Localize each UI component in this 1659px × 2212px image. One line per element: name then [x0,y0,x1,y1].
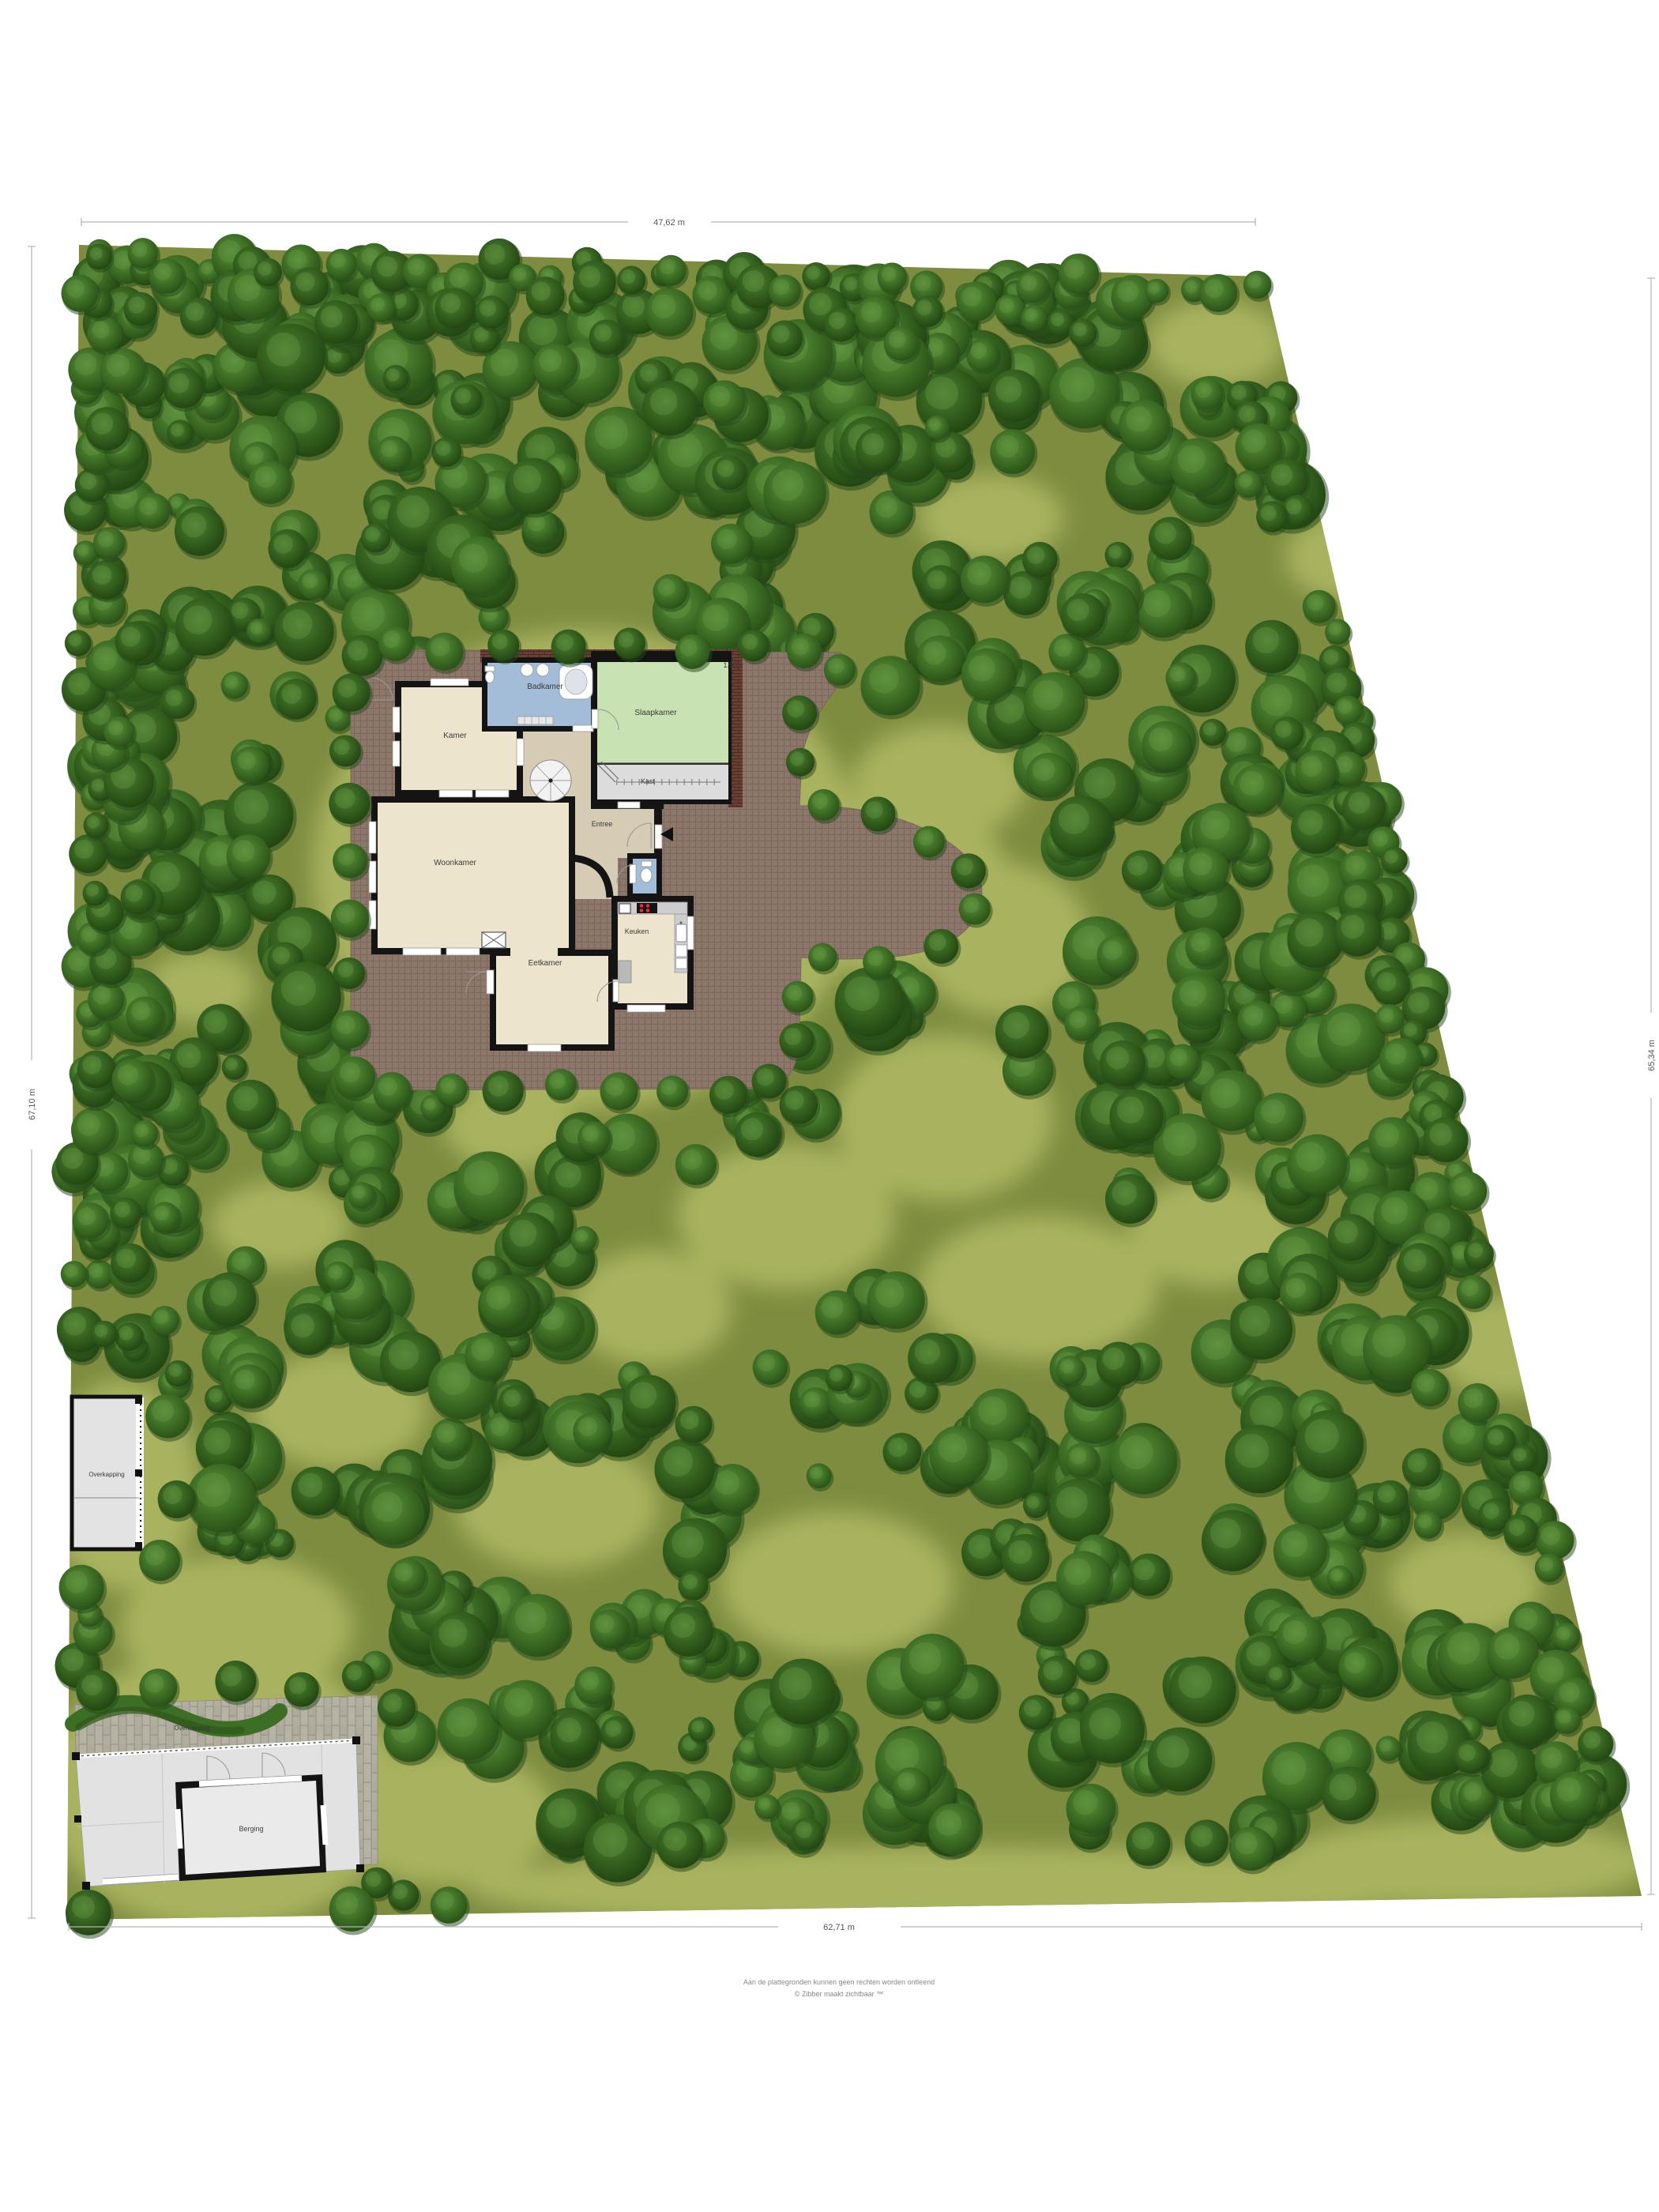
kitchen-sink [676,924,687,942]
dimension-left-label: 67,10 m [28,1089,37,1120]
bathtub [559,664,592,699]
toilet-wc [641,861,652,882]
room-kast-label: Kast [641,777,656,785]
site-plan-svg: Berging Overkapping Overkapping [0,0,1659,2212]
toilet-badkamer [485,666,495,683]
overhang-note-label: 1.50m [723,661,743,669]
room-slaapkamer-label: Slaapkamer [634,709,677,717]
footer: Aan de plattegronden kunnen geen rechten… [743,1978,935,1998]
dimension-top-label: 47,62 m [653,218,685,228]
room-eetkamer [496,956,608,1044]
footer-disclaimer: Aan de plattegronden kunnen geen rechten… [743,1978,935,1986]
sink [521,664,533,676]
berging-label: Berging [239,1825,263,1833]
footer-credit: © Zibber maakt zichtbaar ™ [795,1990,883,1998]
room-eetkamer-label: Eetkamer [529,959,562,968]
room-woonkamer-label: Woonkamer [434,859,476,867]
room-keuken-label: Keuken [625,927,649,935]
room-woonkamer [378,803,569,948]
dimension-bottom-label: 62,71 m [823,1923,855,1932]
room-entree-label: Entree [592,820,613,828]
overkapping-label: Overkapping [88,1471,124,1478]
driveway-overkapping-label: Overkapping [174,1725,209,1732]
radiator [517,717,553,724]
sink [536,664,549,676]
dimension-right-label: 65,34 m [1647,1040,1657,1071]
room-badkamer-label: Badkamer [527,683,563,691]
berging-complex: Berging Overkapping [72,1695,378,1890]
spiral-stair [530,760,571,801]
overkapping: Overkapping [72,1397,144,1549]
room-kamer-label: Kamer [443,732,467,740]
site-plan-page: Berging Overkapping Overkapping [0,0,1659,2212]
